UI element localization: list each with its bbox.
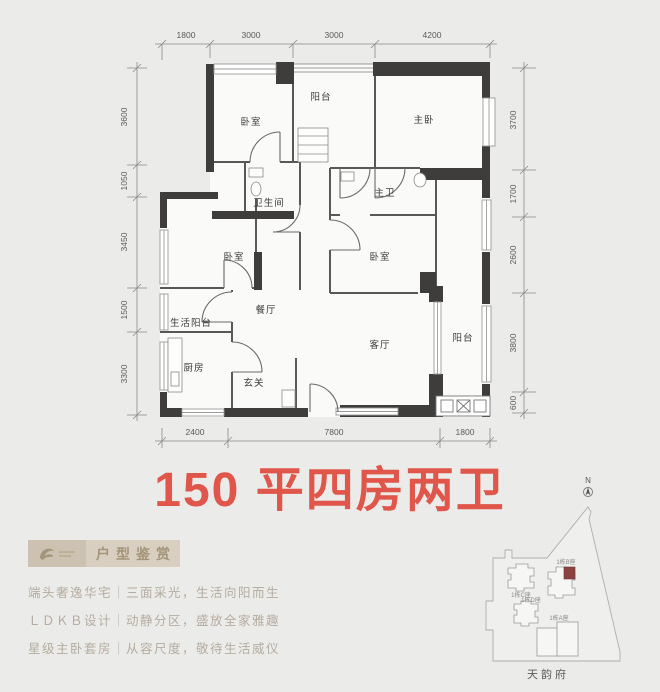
room-label-bedroom-2: 卧室 xyxy=(223,251,244,263)
dim-label: 1700 xyxy=(508,184,518,203)
building-label-d: 1栋D座 xyxy=(521,596,541,604)
feature-line-2: ＬＤＫＢ设计｜动静分区，盛放全家雅趣 xyxy=(28,607,308,635)
floorplan-drawing: 1800 3000 3000 4200 3600 1050 3450 1500 … xyxy=(0,0,660,460)
dim-label: 3000 xyxy=(242,30,261,40)
compass-label: N xyxy=(585,476,591,485)
dim-label: 3300 xyxy=(119,364,129,383)
balcony-fixtures xyxy=(436,396,490,416)
dim-label: 3600 xyxy=(119,107,129,126)
feature-line-1: 端头奢逸华宅｜三面采光，生活向阳而生 xyxy=(28,579,308,607)
building-label-b: 1栋B座 xyxy=(556,558,575,566)
room-label-kitchen: 厨房 xyxy=(183,362,204,374)
dim-label: 4200 xyxy=(423,30,442,40)
dim-label: 7800 xyxy=(325,427,344,437)
room-label-balcony-top: 阳台 xyxy=(310,91,331,103)
room-label-bedroom-3: 卧室 xyxy=(369,251,390,263)
dim-label: 3000 xyxy=(325,30,344,40)
brand-logo-icon xyxy=(35,544,79,564)
highlighted-unit xyxy=(564,567,575,579)
room-label-master-bathroom: 主卫 xyxy=(374,187,395,199)
room-label-balcony-bottom: 阳台 xyxy=(452,332,473,344)
brand-logo xyxy=(28,540,86,567)
feature-lines: 端头奢逸华宅｜三面采光，生活向阳而生 ＬＤＫＢ设计｜动静分区，盛放全家雅趣 星级… xyxy=(28,579,308,663)
room-label-dining: 餐厅 xyxy=(255,304,276,316)
room-label-living: 客厅 xyxy=(369,339,390,351)
feature-line-3: 星级主卧套房｜从容尺度，敬待生活威仪 xyxy=(28,635,308,663)
site-map: N 1栋B座 1栋C座 1栋D座 1栋A座 天韵府 xyxy=(470,460,660,692)
dim-label: 1800 xyxy=(456,427,475,437)
dim-label: 3450 xyxy=(119,232,129,251)
dim-label: 1050 xyxy=(119,171,129,190)
page: 1800 3000 3000 4200 3600 1050 3450 1500 … xyxy=(0,0,660,692)
room-label-master-bedroom: 主卧 xyxy=(413,114,434,126)
room-label-bathroom: 卫生间 xyxy=(253,197,285,209)
room-label-utility-balcony: 生活阳台 xyxy=(170,317,212,329)
room-label-bedroom-1: 卧室 xyxy=(240,116,261,128)
dim-label: 600 xyxy=(508,396,518,410)
dim-label: 3800 xyxy=(508,333,518,352)
badge-title: 户型鉴赏 xyxy=(90,544,176,564)
dim-label: 1500 xyxy=(119,300,129,319)
dim-label: 1800 xyxy=(177,30,196,40)
highlights-section: 户型鉴赏 端头奢逸华宅｜三面采光，生活向阳而生 ＬＤＫＢ设计｜动静分区，盛放全家… xyxy=(28,540,308,663)
building-label-a: 1栋A座 xyxy=(549,614,568,622)
project-name: 天韵府 xyxy=(527,667,569,681)
dim-label: 2600 xyxy=(508,245,518,264)
dim-label: 2400 xyxy=(186,427,205,437)
north-compass-icon: N xyxy=(584,476,593,497)
dim-label: 3700 xyxy=(508,110,518,129)
badge-title-box: 户型鉴赏 xyxy=(86,540,180,567)
badge-band: 户型鉴赏 xyxy=(28,540,180,567)
room-label-foyer: 玄关 xyxy=(243,377,264,389)
